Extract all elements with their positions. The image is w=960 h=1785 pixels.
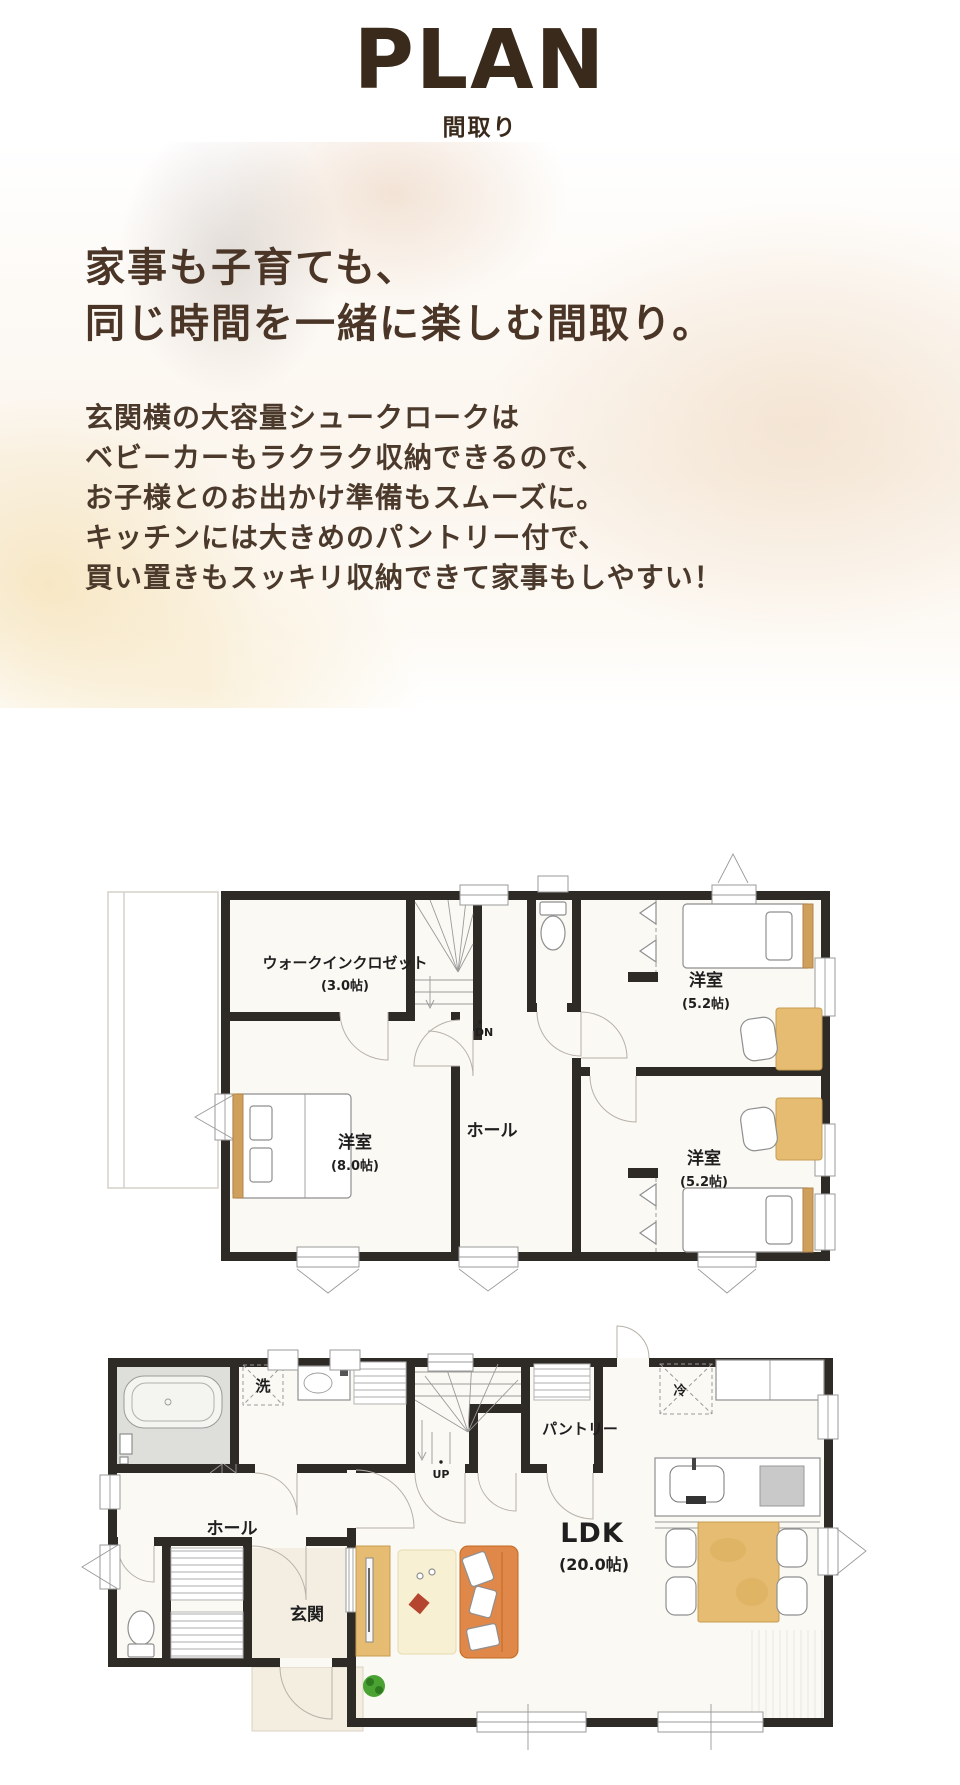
pantry-shelves <box>534 1364 590 1400</box>
bed-icon-lower <box>683 1188 813 1252</box>
hero-heading-line-2: 同じ時間を一緒に楽しむ間取り。 <box>85 296 714 352</box>
hero-body-line: お子様とのお出かけ準備もスムーズに。 <box>85 478 723 518</box>
room-size-wic: (3.0帖) <box>321 978 369 994</box>
rug-icon <box>398 1550 456 1654</box>
room-size-bedroom-main: (8.0帖) <box>331 1158 379 1174</box>
hero-body: 玄関横の大容量シュークロークは ベビーカーもラクラク収納できるので、 お子様との… <box>85 398 723 598</box>
room-label-hall-2f: ホール <box>467 1121 518 1141</box>
hero-body-line: ベビーカーもラクラク収納できるので、 <box>85 438 723 478</box>
page-subtitle: 間取り <box>0 108 960 142</box>
tv-board-icon <box>356 1546 390 1656</box>
balcony-outline <box>108 892 218 1188</box>
genkan-floor <box>252 1548 347 1658</box>
bed-icon-upper <box>683 904 813 968</box>
room-label-entrance: 玄関 <box>290 1604 324 1625</box>
stairs-label-dn: DN <box>475 1026 493 1039</box>
page-header: PLAN 間取り <box>0 18 960 142</box>
room-label-hall-1f: ホール <box>207 1519 258 1539</box>
page-title: PLAN <box>0 18 960 104</box>
label-pantry: パントリー <box>542 1420 618 1438</box>
room-label-ldk: LDK <box>560 1518 624 1549</box>
room-size-bedroom-lower: (5.2帖) <box>680 1174 728 1190</box>
toilet-1f-icon <box>128 1611 154 1657</box>
hero-body-line: キッチンには大きめのパントリー付で、 <box>85 518 723 558</box>
floorplan-2f: ウォークインクロゼット (3.0帖) DN 洋室 (5.2帖) 洋室 (5.2帖… <box>100 880 840 1270</box>
room-size-bedroom-upper: (5.2帖) <box>682 996 730 1012</box>
floorplan-1f: 洗 冷 パントリー UP ホール 玄関 LDK (20.0帖) <box>60 1300 860 1785</box>
room-label-bedroom-main: 洋室 <box>338 1132 372 1153</box>
stairs-label-up: UP <box>433 1468 450 1481</box>
stairs-dn-dot <box>478 1020 481 1023</box>
entrance-porch <box>252 1667 363 1731</box>
hero-heading-line-1: 家事も子育ても、 <box>85 240 714 296</box>
room-label-bedroom-lower: 洋室 <box>687 1148 721 1169</box>
hero-body-line: 買い置きもスッキリ収納できて家事もしやすい！ <box>85 558 723 598</box>
sofa-icon <box>460 1546 518 1658</box>
bed-icon-main <box>233 1094 351 1198</box>
room-label-bedroom-upper: 洋室 <box>689 970 723 991</box>
room-size-ldk: (20.0帖) <box>559 1555 629 1574</box>
hero-body-line: 玄関横の大容量シュークロークは <box>85 398 723 438</box>
hero-heading: 家事も子育ても、 同じ時間を一緒に楽しむ間取り。 <box>85 240 714 352</box>
dining-floor-hatch <box>750 1630 830 1718</box>
label-laundry: 洗 <box>255 1377 270 1395</box>
room-label-wic: ウォークインクロゼット <box>262 954 427 972</box>
page: PLAN 間取り 家事も子育ても、 同じ時間を一緒に楽しむ間取り。 玄関横の大容… <box>0 0 960 1785</box>
kitchen-cabinet <box>716 1360 824 1400</box>
label-fridge: 冷 <box>673 1383 686 1399</box>
stairs-up-dot <box>439 1460 442 1463</box>
toilet-2f-icon <box>538 876 568 950</box>
plant-icon <box>363 1675 385 1697</box>
